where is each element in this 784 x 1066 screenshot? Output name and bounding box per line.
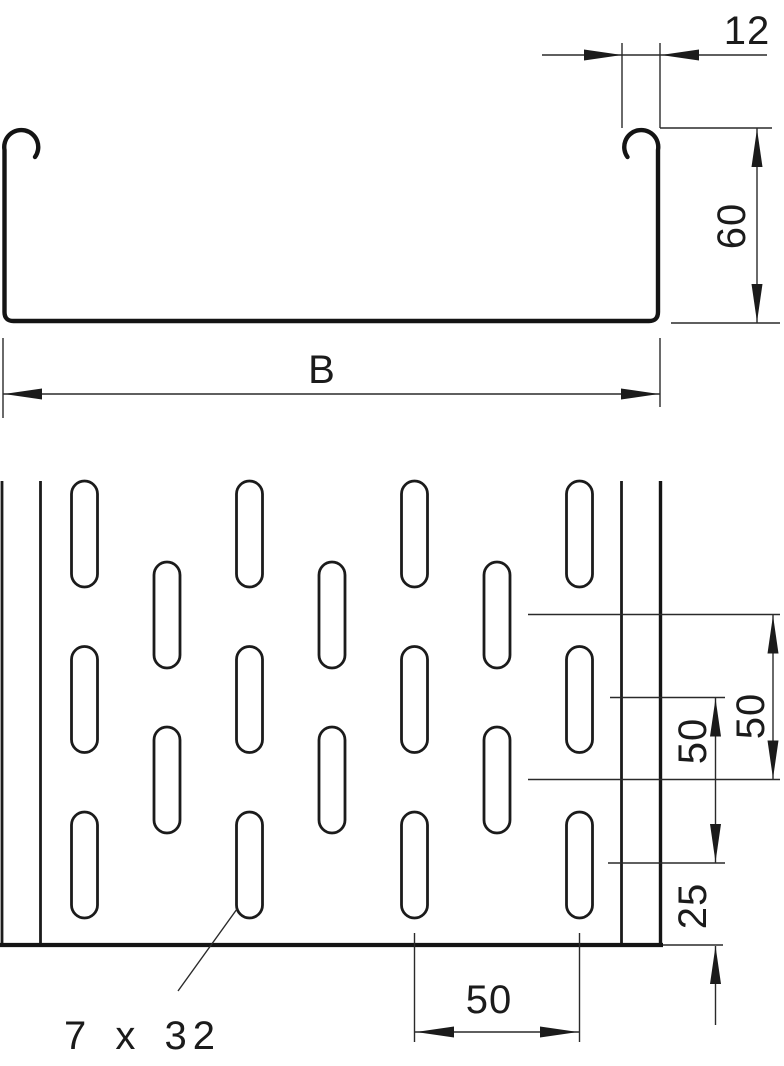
dim-50-inner-label: 50 (671, 718, 715, 765)
dim-12-label: 12 (724, 9, 771, 53)
slot-hole (319, 562, 345, 668)
dim-25-arrow (710, 946, 721, 984)
slot-size-label: 7 x 32 (64, 1014, 221, 1058)
slot-hole (154, 562, 180, 668)
slot-hole (567, 481, 593, 587)
dim-50-outer-arrow-bottom (768, 741, 779, 779)
dim-B-arrow-right (621, 389, 659, 400)
dim-50-bottom-arrow-right (540, 1027, 578, 1038)
profile-outline (4, 130, 658, 321)
dim-12-arrow-left (584, 50, 622, 61)
slot-hole (154, 727, 180, 833)
slot-hole (72, 647, 98, 753)
slot-hole (237, 647, 263, 753)
dim-60-label: 60 (710, 203, 754, 250)
technical-drawing: 12 60 B 50 (0, 0, 784, 1066)
slot-hole (402, 481, 428, 587)
dim-50-bottom-arrow-left (416, 1027, 454, 1038)
dim-50-outer-arrow-top (768, 616, 779, 654)
slot-hole (319, 727, 345, 833)
dim-60-arrow-bottom (752, 284, 763, 322)
dim-B-arrow-left (4, 389, 42, 400)
dim-50-inner-arrow-bottom (710, 824, 721, 862)
slot-leader-line (178, 909, 237, 991)
slot-hole (402, 647, 428, 753)
dim-B-label: B (308, 348, 336, 392)
slot-hole (237, 481, 263, 587)
slot-hole (484, 727, 510, 833)
slot-hole (237, 812, 263, 918)
dim-50-bottom-label: 50 (466, 978, 513, 1022)
slot-hole (567, 812, 593, 918)
dim-12-arrow-right (661, 50, 699, 61)
plan-view: 50 50 25 50 7 x 32 (0, 481, 780, 1058)
slots-group (72, 481, 593, 918)
slot-hole (72, 481, 98, 587)
slot-hole (567, 647, 593, 753)
slot-hole (72, 812, 98, 918)
dim-60-arrow-top (752, 129, 763, 167)
slot-hole (402, 812, 428, 918)
dim-25-label: 25 (671, 883, 715, 930)
dim-50-outer-label: 50 (729, 693, 773, 740)
slot-hole (484, 562, 510, 668)
drawing-canvas: 12 60 B 50 (0, 0, 784, 1066)
cross-section-view: 12 60 B (3, 9, 780, 418)
